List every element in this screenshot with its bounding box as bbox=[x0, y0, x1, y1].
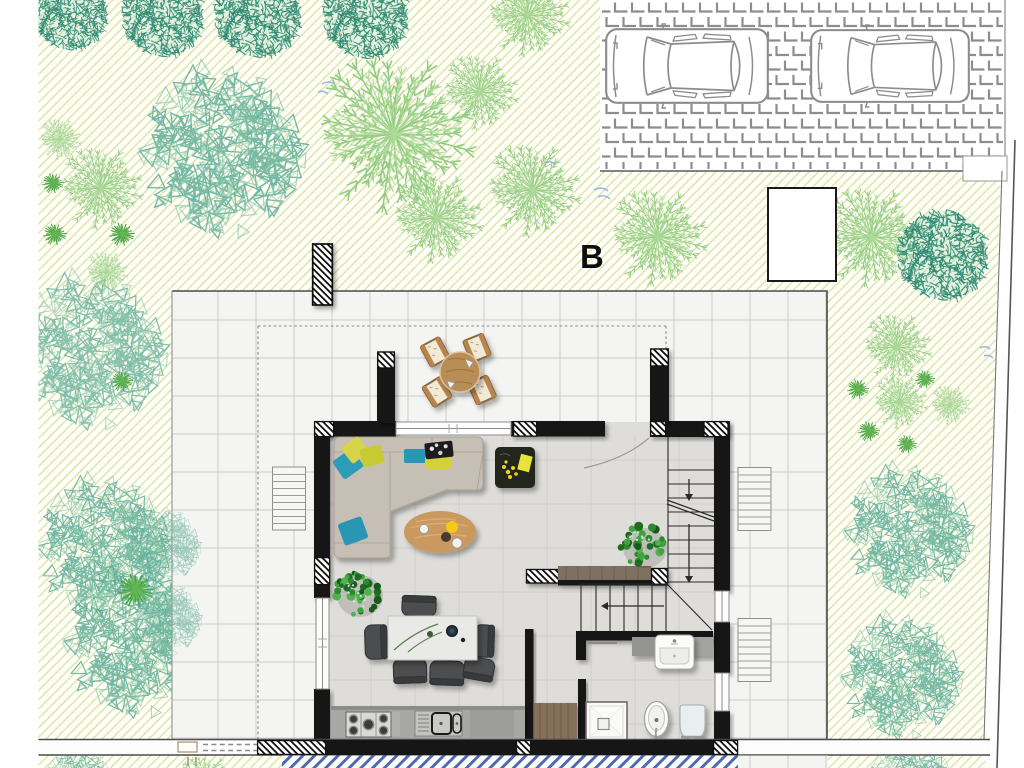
svg-text:B: B bbox=[580, 238, 604, 275]
